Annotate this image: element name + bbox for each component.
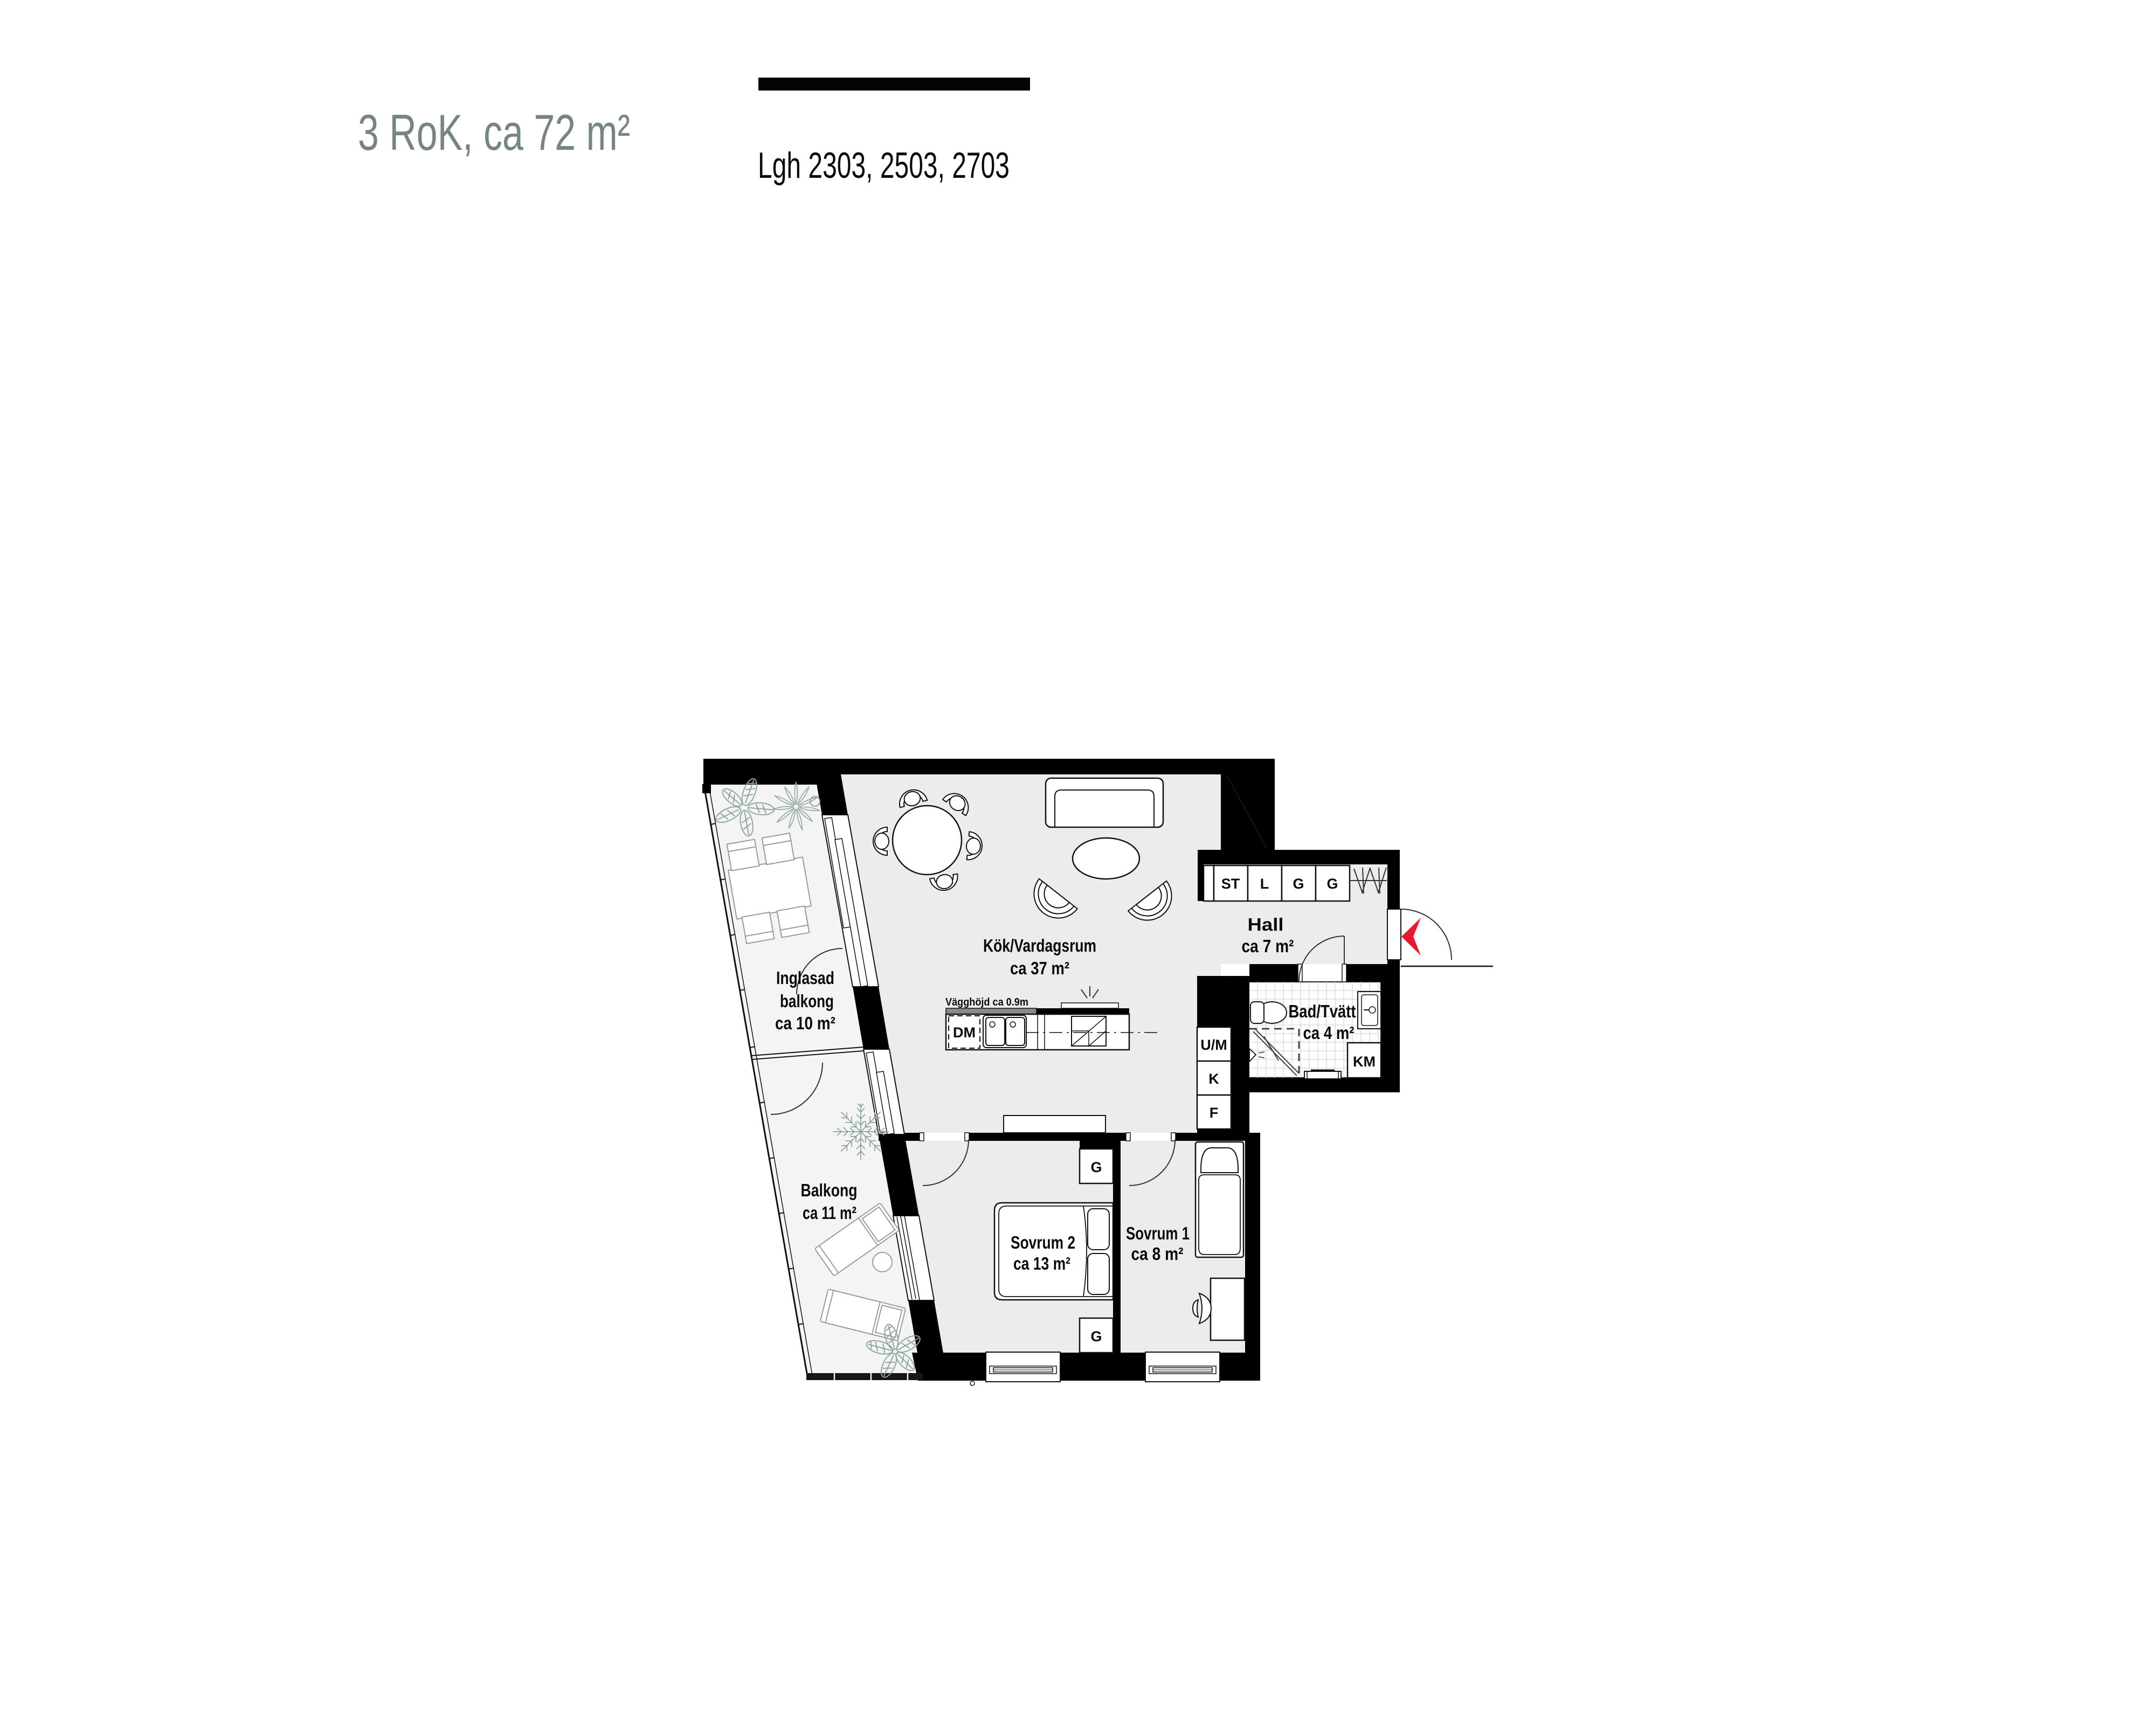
svg-text:Balkong: Balkong — [801, 1180, 858, 1200]
svg-text:ca 4 m²: ca 4 m² — [1303, 1023, 1355, 1043]
svg-text:ca 7 m²: ca 7 m² — [1242, 936, 1294, 956]
svg-text:ca 13 m²: ca 13 m² — [1013, 1253, 1070, 1273]
svg-text:Kök/Vardagsrum: Kök/Vardagsrum — [983, 936, 1096, 955]
svg-text:U/M: U/M — [1200, 1037, 1227, 1053]
svg-text:Hall: Hall — [1248, 915, 1284, 934]
svg-text:Sovrum 1: Sovrum 1 — [1126, 1223, 1190, 1243]
svg-text:ca 10 m²: ca 10 m² — [775, 1013, 835, 1033]
svg-text:G: G — [1090, 1328, 1102, 1345]
svg-text:Sovrum 2: Sovrum 2 — [1011, 1232, 1075, 1252]
svg-text:ST: ST — [1221, 876, 1240, 892]
svg-text:3 RoK, ca 72 m²: 3 RoK, ca 72 m² — [358, 104, 630, 161]
svg-text:ca 37 m²: ca 37 m² — [1010, 958, 1069, 978]
svg-text:ca 8 m²: ca 8 m² — [1131, 1244, 1184, 1264]
svg-text:Bad/Tvätt: Bad/Tvätt — [1289, 1001, 1356, 1021]
svg-text:ca 11 m²: ca 11 m² — [803, 1203, 856, 1223]
svg-text:balkong: balkong — [780, 991, 834, 1011]
svg-text:Vägghöjd ca 0.9m: Vägghöjd ca 0.9m — [945, 996, 1028, 1008]
svg-text:G: G — [1293, 876, 1304, 892]
svg-text:K: K — [1208, 1071, 1219, 1087]
svg-text:G: G — [1090, 1159, 1102, 1175]
svg-text:KM: KM — [1353, 1054, 1376, 1070]
svg-text:L: L — [1260, 876, 1269, 892]
svg-text:Inglasad: Inglasad — [776, 968, 834, 988]
svg-text:DM: DM — [953, 1024, 976, 1041]
svg-text:Lgh 2303, 2503, 2703: Lgh 2303, 2503, 2703 — [758, 145, 1010, 186]
svg-text:G: G — [1326, 876, 1338, 892]
svg-text:F: F — [1210, 1105, 1219, 1121]
